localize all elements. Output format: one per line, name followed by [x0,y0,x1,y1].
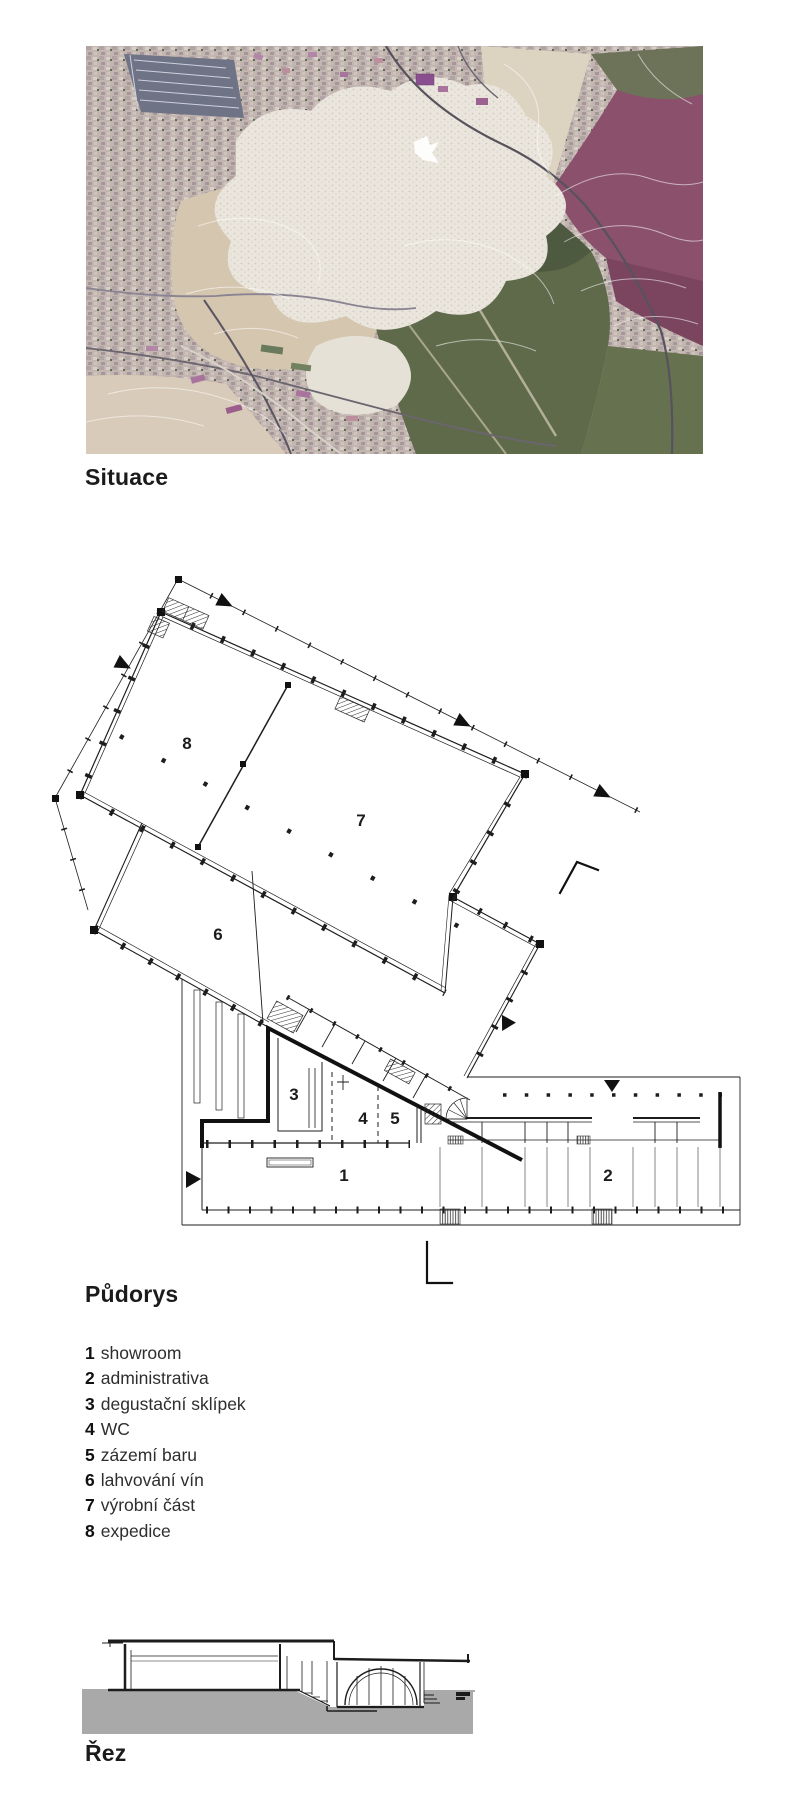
aerial-photo [86,46,703,454]
legend-item: 6lahvování vín [85,1468,246,1493]
legend-label: WC [101,1419,130,1439]
bottling-wing-walls [94,823,269,1027]
legend-label: degustační sklípek [101,1394,246,1414]
legend-item: 4WC [85,1417,246,1442]
floor-plan-drawing: 1 2 3 4 5 6 7 8 [0,540,800,1312]
plan-room-number: 4 [358,1109,368,1128]
legend-num: 7 [85,1495,95,1515]
legend-item: 7výrobní část [85,1493,246,1518]
situace-caption: Situace [85,464,168,491]
section-drawing [0,1600,800,1817]
production-hall-walls [80,612,525,993]
ground-fill [82,1691,473,1734]
plan-room-number: 7 [356,811,365,830]
stair-hatch-wing-2 [384,1059,415,1084]
entry-arrow-admin [604,1080,620,1092]
legend-item: 2administrativa [85,1366,246,1391]
legend-label: showroom [101,1343,182,1363]
portfolio-page: Situace [0,0,800,1817]
legend-num: 3 [85,1394,95,1414]
plan-room-number: 5 [390,1109,399,1128]
plan-legend: 1showroom 2administrativa 3degustační sk… [85,1341,246,1544]
legend-num: 1 [85,1343,95,1363]
legend-item: 5zázemí baru [85,1443,246,1468]
plan-room-number: 3 [289,1085,298,1104]
legend-num: 4 [85,1419,95,1439]
legend-num: 5 [85,1445,95,1465]
legend-num: 6 [85,1470,95,1490]
legend-label: administrativa [101,1368,209,1388]
legend-label: lahvování vín [101,1470,204,1490]
legend-label: výrobní část [101,1495,195,1515]
field-hatched-vineyard [124,54,244,118]
rez-caption: Řez [85,1740,127,1767]
pudorys-caption: Půdorys [85,1281,178,1308]
north-arrows [52,576,614,1035]
legend-item: 8expedice [85,1519,246,1544]
plan-room-number: 8 [182,734,191,753]
legend-num: 8 [85,1521,95,1541]
wall-node [90,926,98,934]
wall-node [536,940,544,948]
legend-item: 1showroom [85,1341,246,1366]
legend-label: zázemí baru [101,1445,197,1465]
dimension-lines [55,579,640,910]
plan-room-number: 2 [603,1166,612,1185]
legend-num: 2 [85,1368,95,1388]
legend-label: expedice [101,1521,171,1541]
plan-room-number: 1 [339,1166,348,1185]
entry-arrow [186,1171,201,1188]
stair-hatch-admin [425,1104,441,1124]
plan-room-number: 6 [213,925,222,944]
legend-item: 3degustační sklípek [85,1392,246,1417]
